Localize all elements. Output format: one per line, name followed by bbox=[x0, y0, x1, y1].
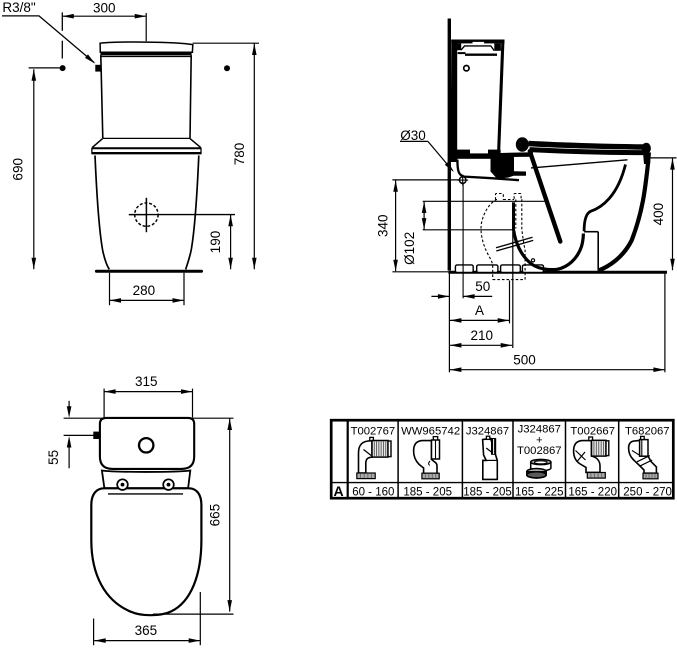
svg-text:690: 690 bbox=[11, 158, 26, 181]
svg-text:400: 400 bbox=[651, 203, 666, 226]
svg-text:340: 340 bbox=[376, 214, 391, 237]
svg-text:190: 190 bbox=[208, 231, 223, 254]
svg-text:55: 55 bbox=[46, 450, 61, 465]
svg-text:T002867: T002867 bbox=[517, 445, 562, 457]
svg-text:185 - 205: 185 - 205 bbox=[463, 487, 512, 499]
svg-text:50: 50 bbox=[475, 279, 490, 294]
svg-text:R3/8": R3/8" bbox=[2, 0, 36, 15]
svg-text:Ø102: Ø102 bbox=[402, 232, 417, 265]
svg-text:300: 300 bbox=[93, 1, 116, 16]
svg-text:780: 780 bbox=[232, 143, 247, 166]
svg-text:T002767: T002767 bbox=[351, 425, 396, 437]
svg-text:315: 315 bbox=[135, 374, 158, 389]
svg-text:250 - 270: 250 - 270 bbox=[623, 487, 672, 499]
svg-text:T682067: T682067 bbox=[625, 425, 670, 437]
svg-text:500: 500 bbox=[513, 352, 536, 367]
svg-text:185 - 205: 185 - 205 bbox=[403, 487, 452, 499]
svg-text:665: 665 bbox=[208, 504, 223, 527]
svg-text:165 - 220: 165 - 220 bbox=[568, 487, 617, 499]
svg-text:210: 210 bbox=[471, 328, 494, 343]
svg-text:60 - 160: 60 - 160 bbox=[352, 487, 394, 499]
svg-text:WW965742: WW965742 bbox=[401, 425, 460, 437]
svg-text:T002667: T002667 bbox=[570, 425, 615, 437]
svg-text:365: 365 bbox=[135, 623, 158, 638]
svg-text:A: A bbox=[475, 303, 484, 318]
svg-text:A: A bbox=[333, 483, 343, 499]
svg-text:165 - 225: 165 - 225 bbox=[515, 487, 564, 499]
svg-text:280: 280 bbox=[133, 283, 156, 298]
